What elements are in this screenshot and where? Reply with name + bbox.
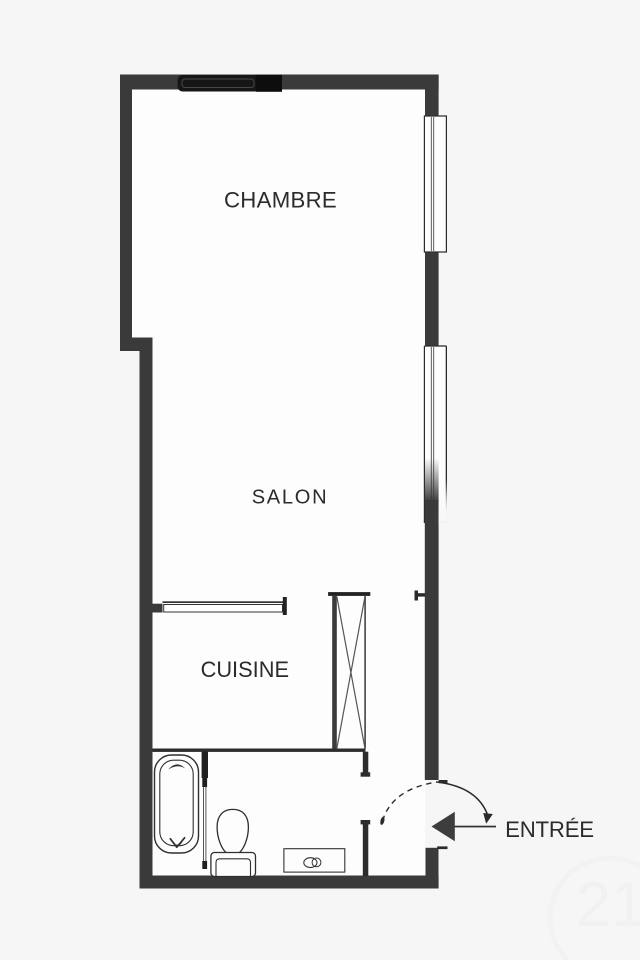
svg-text:ENTRÉE: ENTRÉE (505, 817, 594, 842)
svg-text:CHAMBRE: CHAMBRE (224, 187, 337, 212)
svg-text:SALON: SALON (252, 486, 329, 508)
svg-text:CUISINE: CUISINE (201, 657, 289, 682)
svg-text:21: 21 (576, 870, 640, 940)
